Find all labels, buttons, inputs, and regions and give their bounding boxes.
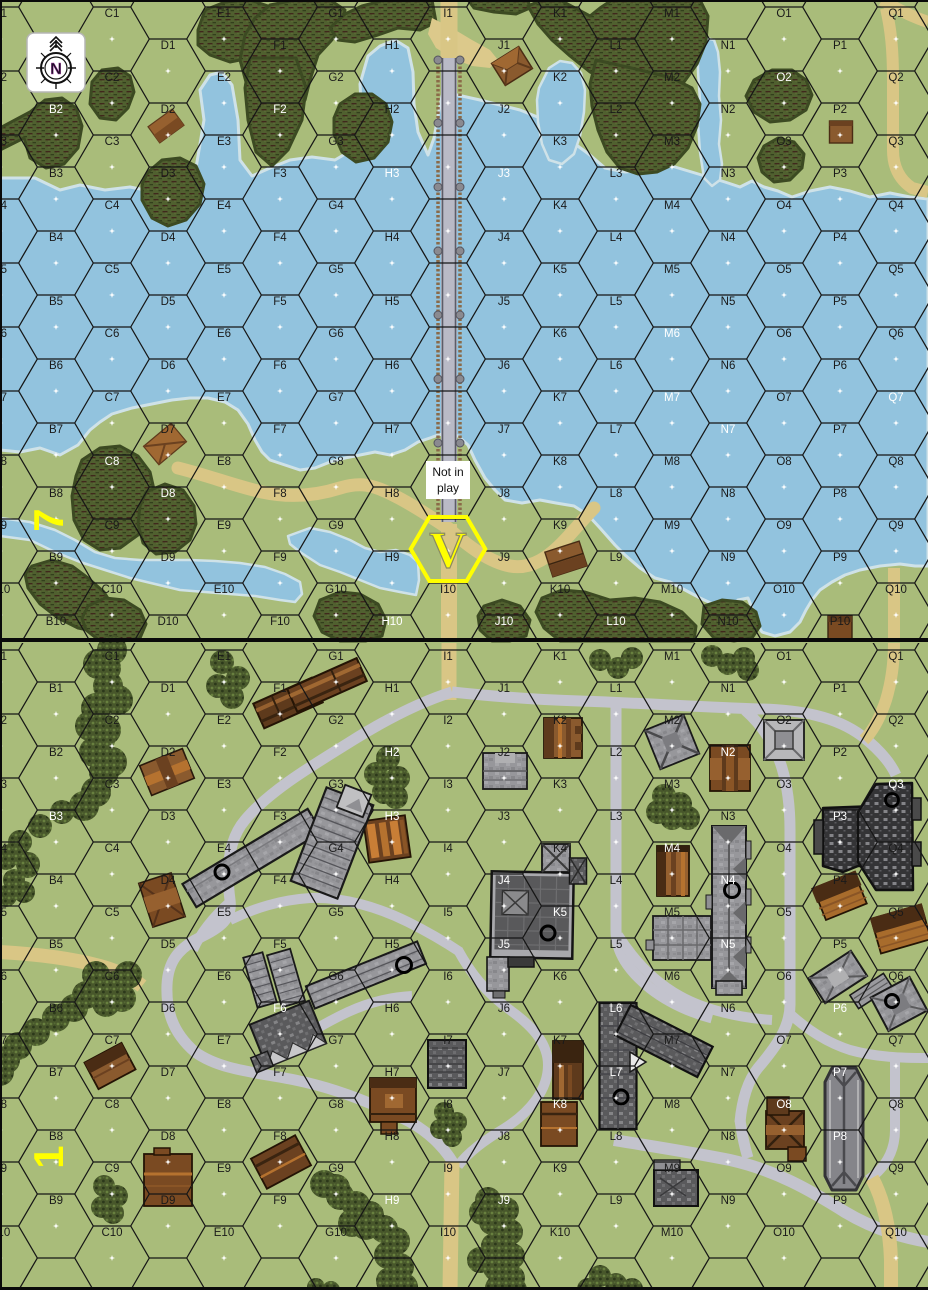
svg-text:F1: F1: [273, 40, 286, 52]
svg-text:O6: O6: [776, 971, 791, 983]
svg-text:N1: N1: [721, 40, 736, 52]
svg-text:E10: E10: [214, 584, 234, 596]
svg-text:M1: M1: [664, 8, 680, 20]
svg-text:J7: J7: [498, 1067, 510, 1079]
svg-text:K4: K4: [553, 843, 568, 855]
svg-text:N3: N3: [721, 168, 736, 180]
svg-text:L4: L4: [610, 875, 623, 887]
svg-text:G9: G9: [328, 520, 343, 532]
svg-text:K7: K7: [553, 392, 567, 404]
svg-text:H9: H9: [385, 552, 400, 564]
svg-text:B7: B7: [49, 1067, 63, 1079]
svg-text:7: 7: [25, 508, 72, 531]
svg-text:P8: P8: [833, 1131, 847, 1143]
svg-text:N10: N10: [717, 616, 738, 628]
svg-text:C5: C5: [105, 907, 120, 919]
svg-text:Q2: Q2: [888, 715, 903, 727]
svg-text:N8: N8: [721, 488, 736, 500]
svg-text:I2: I2: [443, 715, 453, 727]
svg-text:Q4: Q4: [888, 200, 904, 212]
svg-text:L8: L8: [610, 488, 623, 500]
svg-text:B6: B6: [49, 360, 63, 372]
svg-text:J3: J3: [498, 811, 510, 823]
svg-text:P2: P2: [833, 104, 847, 116]
svg-text:D4: D4: [161, 875, 176, 887]
svg-text:1: 1: [25, 1145, 72, 1168]
svg-text:C2: C2: [105, 715, 120, 727]
svg-text:B9: B9: [49, 552, 63, 564]
svg-text:E3: E3: [217, 136, 231, 148]
svg-text:H7: H7: [385, 424, 400, 436]
svg-text:I1: I1: [443, 8, 453, 20]
svg-text:O10: O10: [773, 584, 795, 596]
svg-text:J5: J5: [498, 296, 510, 308]
svg-text:H3: H3: [385, 168, 400, 180]
svg-text:N6: N6: [721, 1003, 736, 1015]
svg-text:I4: I4: [443, 843, 453, 855]
svg-text:K2: K2: [553, 72, 567, 84]
svg-text:P7: P7: [833, 1067, 847, 1079]
svg-text:D2: D2: [161, 747, 176, 759]
svg-text:J2: J2: [498, 104, 510, 116]
svg-text:G2: G2: [328, 715, 343, 727]
svg-text:I9: I9: [443, 1163, 453, 1175]
svg-text:F7: F7: [273, 1067, 286, 1079]
svg-text:H7: H7: [385, 1067, 400, 1079]
svg-text:Q3: Q3: [888, 779, 903, 791]
svg-text:J6: J6: [498, 360, 510, 372]
svg-text:E10: E10: [214, 1227, 234, 1239]
svg-text:M4: M4: [664, 843, 681, 855]
svg-text:L8: L8: [610, 1131, 623, 1143]
svg-text:N4: N4: [721, 232, 736, 244]
svg-text:C7: C7: [105, 392, 120, 404]
svg-text:E5: E5: [217, 264, 231, 276]
svg-text:L5: L5: [610, 939, 623, 951]
svg-text:N: N: [50, 61, 62, 78]
svg-text:D8: D8: [161, 1131, 176, 1143]
svg-text:B1: B1: [49, 683, 63, 695]
svg-text:F7: F7: [273, 424, 286, 436]
svg-text:K2: K2: [553, 715, 567, 727]
svg-text:E4: E4: [217, 843, 232, 855]
svg-text:G3: G3: [328, 136, 343, 148]
svg-text:G6: G6: [328, 328, 343, 340]
svg-text:C8: C8: [105, 456, 120, 468]
svg-text:H10: H10: [381, 616, 402, 628]
svg-text:G10: G10: [325, 1227, 347, 1239]
svg-text:C10: C10: [101, 1227, 122, 1239]
svg-text:L4: L4: [610, 232, 623, 244]
svg-text:N1: N1: [721, 683, 736, 695]
svg-text:E9: E9: [217, 520, 231, 532]
svg-text:H2: H2: [385, 747, 400, 759]
svg-text:G7: G7: [328, 392, 343, 404]
svg-text:C1: C1: [105, 8, 120, 20]
svg-text:O2: O2: [776, 715, 791, 727]
svg-text:H6: H6: [385, 360, 400, 372]
svg-text:Q6: Q6: [888, 328, 903, 340]
svg-text:P8: P8: [833, 488, 847, 500]
svg-text:G3: G3: [328, 779, 343, 791]
svg-text:N5: N5: [721, 939, 736, 951]
svg-text:O8: O8: [776, 456, 791, 468]
svg-text:K3: K3: [553, 136, 567, 148]
svg-text:E5: E5: [217, 907, 231, 919]
svg-text:I1: I1: [443, 651, 453, 663]
svg-text:G9: G9: [328, 1163, 343, 1175]
svg-text:B2: B2: [49, 104, 63, 116]
svg-text:H3: H3: [385, 811, 400, 823]
svg-text:J8: J8: [498, 1131, 510, 1143]
svg-text:Q10: Q10: [885, 584, 907, 596]
svg-text:B4: B4: [49, 232, 64, 244]
svg-text:O4: O4: [776, 843, 792, 855]
svg-text:K1: K1: [553, 8, 567, 20]
svg-text:G5: G5: [328, 264, 343, 276]
svg-text:H4: H4: [385, 232, 400, 244]
svg-text:I10: I10: [440, 584, 456, 596]
svg-text:N2: N2: [721, 104, 736, 116]
svg-text:O5: O5: [776, 907, 791, 919]
svg-text:M10: M10: [661, 584, 683, 596]
svg-text:G6: G6: [328, 971, 343, 983]
svg-text:L6: L6: [610, 360, 623, 372]
svg-text:O3: O3: [776, 779, 791, 791]
svg-text:J4: J4: [498, 875, 511, 887]
svg-text:K4: K4: [553, 200, 568, 212]
svg-text:D6: D6: [161, 360, 176, 372]
svg-text:P9: P9: [833, 1195, 847, 1207]
svg-text:G2: G2: [328, 72, 343, 84]
svg-text:F4: F4: [273, 232, 287, 244]
svg-text:F8: F8: [273, 488, 286, 500]
svg-text:E4: E4: [217, 200, 232, 212]
svg-text:M5: M5: [664, 264, 680, 276]
svg-text:E7: E7: [217, 1035, 231, 1047]
svg-text:O1: O1: [776, 8, 791, 20]
svg-text:O4: O4: [776, 200, 792, 212]
svg-text:L2: L2: [610, 747, 623, 759]
svg-text:G8: G8: [328, 456, 343, 468]
svg-text:M9: M9: [664, 1163, 680, 1175]
svg-text:E2: E2: [217, 72, 231, 84]
svg-text:G8: G8: [328, 1099, 343, 1111]
svg-text:Q7: Q7: [888, 392, 903, 404]
svg-text:C9: C9: [105, 1163, 120, 1175]
svg-text:F6: F6: [273, 1003, 286, 1015]
svg-text:D4: D4: [161, 232, 176, 244]
svg-text:G1: G1: [328, 651, 343, 663]
svg-text:M7: M7: [664, 1035, 680, 1047]
svg-text:M7: M7: [664, 392, 680, 404]
svg-text:D3: D3: [161, 168, 176, 180]
svg-text:N2: N2: [721, 747, 736, 759]
svg-text:L7: L7: [610, 424, 623, 436]
svg-text:J9: J9: [498, 552, 510, 564]
svg-text:K8: K8: [553, 1099, 567, 1111]
svg-text:M9: M9: [664, 520, 680, 532]
svg-text:C10: C10: [101, 584, 122, 596]
svg-text:L7: L7: [610, 1067, 623, 1079]
svg-text:F5: F5: [273, 296, 286, 308]
svg-text:K9: K9: [553, 1163, 567, 1175]
svg-text:H1: H1: [385, 40, 400, 52]
svg-text:B8: B8: [49, 488, 63, 500]
svg-text:J8: J8: [498, 488, 510, 500]
svg-text:F9: F9: [273, 552, 286, 564]
svg-text:Q5: Q5: [888, 907, 903, 919]
svg-text:M2: M2: [664, 72, 680, 84]
svg-text:K9: K9: [553, 520, 567, 532]
svg-text:O6: O6: [776, 328, 791, 340]
svg-text:Q7: Q7: [888, 1035, 903, 1047]
svg-text:D9: D9: [161, 552, 176, 564]
svg-text:Q10: Q10: [885, 1227, 907, 1239]
svg-text:D3: D3: [161, 811, 176, 823]
svg-text:P3: P3: [833, 168, 847, 180]
svg-text:O5: O5: [776, 264, 791, 276]
svg-text:Q9: Q9: [888, 520, 903, 532]
svg-text:Q8: Q8: [888, 456, 903, 468]
svg-text:Q9: Q9: [888, 1163, 903, 1175]
svg-text:N7: N7: [721, 1067, 736, 1079]
svg-text:J4: J4: [498, 232, 511, 244]
svg-text:I7: I7: [443, 1035, 453, 1047]
svg-text:Q1: Q1: [888, 8, 903, 20]
svg-text:O1: O1: [776, 651, 791, 663]
svg-text:E2: E2: [217, 715, 231, 727]
svg-text:F10: F10: [270, 616, 290, 628]
svg-text:L6: L6: [610, 1003, 623, 1015]
svg-text:M6: M6: [664, 328, 680, 340]
svg-text:P10: P10: [830, 616, 850, 628]
svg-text:B3: B3: [49, 168, 63, 180]
svg-text:H5: H5: [385, 939, 400, 951]
svg-text:L9: L9: [610, 1195, 623, 1207]
svg-text:N8: N8: [721, 1131, 736, 1143]
svg-text:O7: O7: [776, 1035, 791, 1047]
svg-text:F4: F4: [273, 875, 287, 887]
svg-text:P1: P1: [833, 40, 847, 52]
svg-text:M8: M8: [664, 1099, 680, 1111]
svg-text:D7: D7: [161, 424, 176, 436]
svg-text:H1: H1: [385, 683, 400, 695]
svg-text:M10: M10: [661, 1227, 683, 1239]
svg-text:D9: D9: [161, 1195, 176, 1207]
svg-text:J2: J2: [498, 747, 510, 759]
svg-text:E7: E7: [217, 392, 231, 404]
svg-text:B10: B10: [46, 616, 66, 628]
svg-text:O2: O2: [776, 72, 791, 84]
svg-text:E6: E6: [217, 971, 231, 983]
svg-text:P4: P4: [833, 232, 848, 244]
svg-text:M2: M2: [664, 715, 680, 727]
svg-text:E9: E9: [217, 1163, 231, 1175]
svg-text:L1: L1: [610, 40, 623, 52]
svg-text:E3: E3: [217, 779, 231, 791]
svg-text:M6: M6: [664, 971, 680, 983]
svg-text:P4: P4: [833, 875, 848, 887]
svg-text:F9: F9: [273, 1195, 286, 1207]
svg-text:M3: M3: [664, 136, 680, 148]
svg-text:N3: N3: [721, 811, 736, 823]
svg-text:E6: E6: [217, 328, 231, 340]
svg-text:N4: N4: [721, 875, 736, 887]
svg-text:I6: I6: [443, 971, 453, 983]
svg-text:P5: P5: [833, 939, 847, 951]
svg-text:O7: O7: [776, 392, 791, 404]
svg-text:F3: F3: [273, 168, 286, 180]
svg-text:P9: P9: [833, 552, 847, 564]
svg-text:Q4: Q4: [888, 843, 904, 855]
svg-text:F2: F2: [273, 104, 286, 116]
svg-text:N6: N6: [721, 360, 736, 372]
svg-text:G7: G7: [328, 1035, 343, 1047]
svg-text:L1: L1: [610, 683, 623, 695]
svg-text:H2: H2: [385, 104, 400, 116]
svg-text:K10: K10: [550, 1227, 570, 1239]
svg-text:P5: P5: [833, 296, 847, 308]
svg-text:O9: O9: [776, 1163, 791, 1175]
svg-text:L3: L3: [610, 168, 623, 180]
svg-text:G4: G4: [328, 200, 344, 212]
svg-text:H8: H8: [385, 1131, 400, 1143]
svg-text:D1: D1: [161, 40, 176, 52]
svg-text:H6: H6: [385, 1003, 400, 1015]
svg-text:J6: J6: [498, 1003, 510, 1015]
svg-text:I3: I3: [443, 779, 453, 791]
svg-text:C1: C1: [105, 651, 120, 663]
svg-text:H9: H9: [385, 1195, 400, 1207]
svg-text:D1: D1: [161, 683, 176, 695]
svg-text:Q6: Q6: [888, 971, 903, 983]
svg-text:O9: O9: [776, 520, 791, 532]
svg-text:J10: J10: [495, 616, 514, 628]
svg-text:B7: B7: [49, 424, 63, 436]
svg-text:O8: O8: [776, 1099, 791, 1111]
svg-text:N9: N9: [721, 552, 736, 564]
svg-text:N9: N9: [721, 1195, 736, 1207]
svg-text:F3: F3: [273, 811, 286, 823]
svg-text:K5: K5: [553, 264, 567, 276]
svg-text:E1: E1: [217, 8, 231, 20]
svg-text:D6: D6: [161, 1003, 176, 1015]
svg-text:F2: F2: [273, 747, 286, 759]
svg-text:C6: C6: [105, 971, 120, 983]
svg-text:C2: C2: [105, 72, 120, 84]
svg-text:I10: I10: [440, 1227, 456, 1239]
svg-text:E1: E1: [217, 651, 231, 663]
svg-text:C6: C6: [105, 328, 120, 340]
svg-text:J3: J3: [498, 168, 510, 180]
svg-text:V: V: [429, 522, 467, 579]
svg-text:B2: B2: [49, 747, 63, 759]
svg-text:Q5: Q5: [888, 264, 903, 276]
svg-text:C3: C3: [105, 779, 120, 791]
svg-text:L5: L5: [610, 296, 623, 308]
svg-text:F8: F8: [273, 1131, 286, 1143]
svg-text:J5: J5: [498, 939, 510, 951]
svg-text:D7: D7: [161, 1067, 176, 1079]
svg-text:E8: E8: [217, 1099, 231, 1111]
svg-text:B8: B8: [49, 1131, 63, 1143]
svg-text:I8: I8: [443, 1099, 453, 1111]
svg-text:M8: M8: [664, 456, 680, 468]
svg-text:D5: D5: [161, 296, 176, 308]
svg-text:O10: O10: [773, 1227, 795, 1239]
svg-text:D2: D2: [161, 104, 176, 116]
svg-text:P3: P3: [833, 811, 847, 823]
svg-text:L10: L10: [606, 616, 625, 628]
svg-text:Q2: Q2: [888, 72, 903, 84]
svg-text:C4: C4: [105, 843, 120, 855]
svg-text:O3: O3: [776, 136, 791, 148]
svg-text:P6: P6: [833, 360, 847, 372]
svg-text:F5: F5: [273, 939, 286, 951]
svg-text:F6: F6: [273, 360, 286, 372]
svg-text:G1: G1: [328, 8, 343, 20]
svg-text:play: play: [437, 481, 459, 495]
svg-text:M5: M5: [664, 907, 680, 919]
svg-text:I5: I5: [443, 907, 453, 919]
svg-text:C7: C7: [105, 1035, 120, 1047]
svg-text:N7: N7: [721, 424, 736, 436]
svg-text:J1: J1: [498, 40, 510, 52]
svg-text:P6: P6: [833, 1003, 847, 1015]
svg-text:C5: C5: [105, 264, 120, 276]
svg-text:K8: K8: [553, 456, 567, 468]
svg-text:K1: K1: [553, 651, 567, 663]
svg-text:J1: J1: [498, 683, 510, 695]
svg-text:E8: E8: [217, 456, 231, 468]
svg-text:M3: M3: [664, 779, 680, 791]
svg-text:M4: M4: [664, 200, 681, 212]
svg-text:D5: D5: [161, 939, 176, 951]
svg-text:B4: B4: [49, 875, 64, 887]
svg-text:D8: D8: [161, 488, 176, 500]
svg-text:P1: P1: [833, 683, 847, 695]
svg-text:C3: C3: [105, 136, 120, 148]
svg-text:P2: P2: [833, 747, 847, 759]
svg-text:H8: H8: [385, 488, 400, 500]
svg-text:B3: B3: [49, 811, 63, 823]
svg-text:C9: C9: [105, 520, 120, 532]
svg-text:G4: G4: [328, 843, 344, 855]
svg-text:L9: L9: [610, 552, 623, 564]
svg-text:D10: D10: [157, 616, 178, 628]
svg-text:Q8: Q8: [888, 1099, 903, 1111]
svg-text:Q3: Q3: [888, 136, 903, 148]
svg-text:K6: K6: [553, 328, 567, 340]
svg-text:H5: H5: [385, 296, 400, 308]
svg-text:J7: J7: [498, 424, 510, 436]
svg-text:G5: G5: [328, 907, 343, 919]
svg-text:G10: G10: [325, 584, 347, 596]
svg-text:K7: K7: [553, 1035, 567, 1047]
svg-text:K10: K10: [550, 584, 570, 596]
svg-text:F1: F1: [273, 683, 286, 695]
svg-text:K6: K6: [553, 971, 567, 983]
svg-text:K5: K5: [553, 907, 567, 919]
svg-text:H4: H4: [385, 875, 400, 887]
svg-text:J9: J9: [498, 1195, 510, 1207]
svg-text:B9: B9: [49, 1195, 63, 1207]
svg-text:M1: M1: [664, 651, 680, 663]
svg-text:B5: B5: [49, 939, 63, 951]
svg-text:L2: L2: [610, 104, 623, 116]
svg-text:C4: C4: [105, 200, 120, 212]
